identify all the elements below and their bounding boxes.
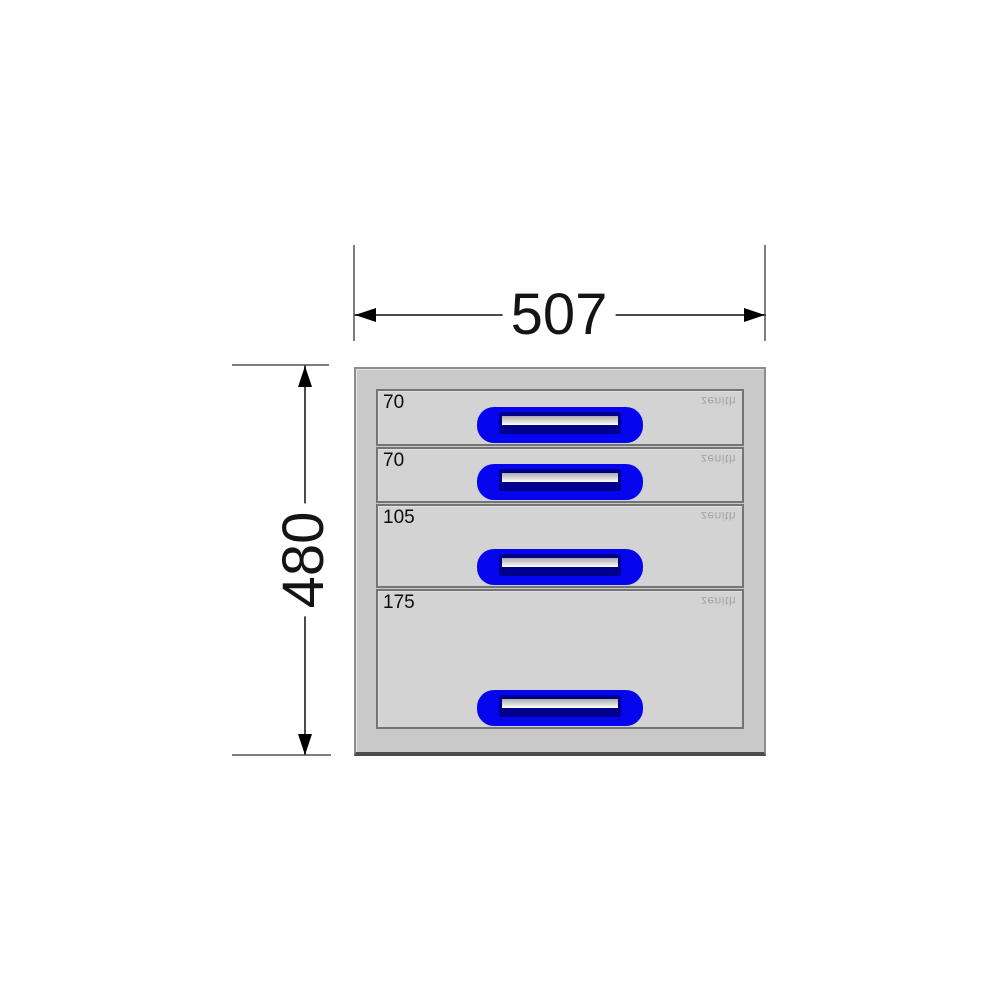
dimension-arrow-left-icon xyxy=(355,308,376,322)
width-extension-line-left xyxy=(353,245,355,341)
drawer-handle xyxy=(477,549,643,585)
height-extension-line-bottom xyxy=(232,754,331,756)
brand-logo-text: zenith xyxy=(701,509,736,522)
drawer-handle xyxy=(477,690,643,726)
handle-grip-slot xyxy=(502,558,618,567)
width-extension-line-right xyxy=(764,245,766,341)
handle-grip-slot xyxy=(502,473,618,482)
handle-recess xyxy=(499,412,621,434)
drawer-handle xyxy=(477,464,643,500)
technical-drawing-canvas: 507 480 70 zenith 70 zenith xyxy=(0,0,1000,1000)
drawer-height-label: 105 xyxy=(383,506,415,530)
brand-logo-text: zenith xyxy=(701,452,736,465)
drawer-3: 105 zenith xyxy=(376,504,744,588)
dimension-arrow-down-icon xyxy=(298,734,312,755)
width-dimension-label: 507 xyxy=(503,286,616,344)
brand-logo-text: zenith xyxy=(701,594,736,607)
handle-grip-slot xyxy=(502,416,618,425)
drawer-4: 175 zenith xyxy=(376,589,744,729)
drawer-handle xyxy=(477,407,643,443)
brand-logo-text: zenith xyxy=(701,394,736,407)
drawer-cabinet: 70 zenith 70 zenith 105 zenith xyxy=(354,367,766,756)
drawer-1: 70 zenith xyxy=(376,389,744,446)
dimension-arrow-up-icon xyxy=(298,366,312,387)
handle-recess xyxy=(499,554,621,576)
height-extension-line-top xyxy=(232,364,329,366)
height-dimension-label: 480 xyxy=(275,504,333,617)
drawer-height-label: 70 xyxy=(383,449,404,473)
drawer-2: 70 zenith xyxy=(376,447,744,503)
handle-recess xyxy=(499,695,621,717)
drawer-height-label: 175 xyxy=(383,591,415,615)
dimension-arrow-right-icon xyxy=(744,308,765,322)
handle-recess xyxy=(499,469,621,491)
drawer-height-label: 70 xyxy=(383,391,404,415)
handle-grip-slot xyxy=(502,699,618,708)
